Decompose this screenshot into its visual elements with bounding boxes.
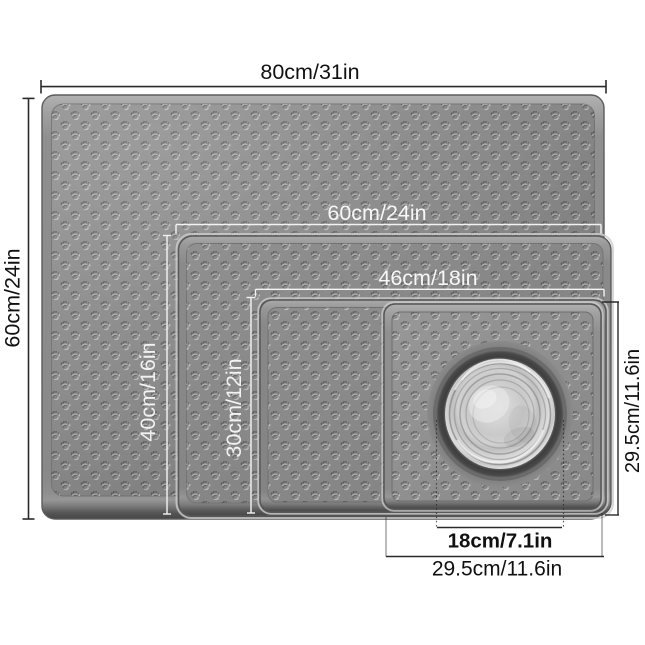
svg-text:30cm/12in: 30cm/12in [222,358,246,457]
svg-text:29.5cm/11.6in: 29.5cm/11.6in [622,349,644,473]
svg-text:60cm/24in: 60cm/24in [327,201,426,225]
svg-text:60cm/24in: 60cm/24in [1,248,25,347]
svg-text:18cm/7.1in: 18cm/7.1in [448,530,553,553]
svg-text:80cm/31in: 80cm/31in [260,60,359,84]
svg-text:29.5cm/11.6in: 29.5cm/11.6in [432,558,562,581]
svg-text:46cm/18in: 46cm/18in [378,266,477,290]
svg-text:40cm/16in: 40cm/16in [136,342,160,441]
